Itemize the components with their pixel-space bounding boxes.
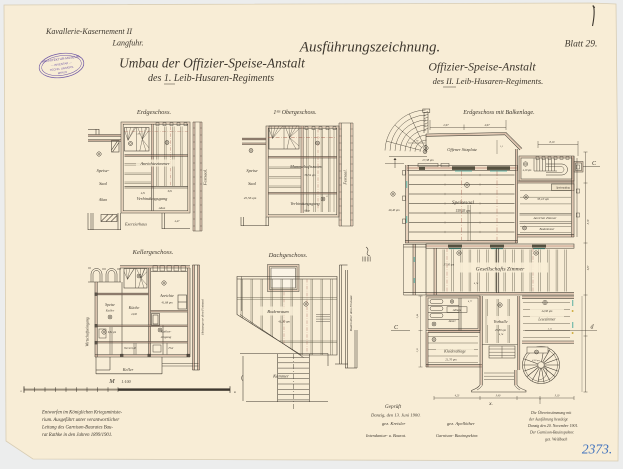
svg-text:Blatt 29.: Blatt 29. [565,40,598,50]
svg-text:Bodenraum: Bodenraum [267,309,289,314]
svg-text:4,19 qm: 4,19 qm [523,169,532,172]
svg-text:Speiseaufzug: Speiseaufzug [556,187,570,190]
svg-text:Altan: Altan [303,210,311,213]
svg-text:des II. Leib-Husaren-Regiment: des II. Leib-Husaren-Regiments. [433,76,544,86]
svg-text:des 1. Leib-Husaren-Regiments: des 1. Leib-Husaren-Regiments [148,73,274,84]
svg-text:Badezimmer: Badezimmer [540,227,556,231]
svg-text:Intendantur- u. Baurat.: Intendantur- u. Baurat. [365,433,406,438]
svg-text:Festsaal.: Festsaal. [343,169,348,185]
svg-text:8,10: 8,10 [587,219,590,224]
svg-text:Küche: Küche [128,305,140,310]
svg-text:rat Rathke in den Jahren 189: rat Rathke in den Jahren 1899/1901. [42,433,112,438]
svg-text:4,74: 4,74 [474,282,479,285]
svg-text:Speise-: Speise- [97,168,110,173]
svg-text:3,10: 3,10 [555,395,560,398]
svg-text:Der Garnison-Bauinspektor.: Der Garnison-Bauinspektor. [529,431,574,435]
svg-text:Leitung des Garnison-Baurates: Leitung des Garnison-Baurates Bau- [41,426,113,431]
svg-text:Verbindungsgang: Verbindungsgang [137,196,169,201]
svg-text:Kellergeschoss.: Kellergeschoss. [132,249,174,256]
svg-text:4,31: 4,31 [141,192,146,195]
svg-text:Boden über dem Festsaal.: Boden über dem Festsaal. [349,295,353,332]
svg-text:Altan: Altan [98,198,107,202]
svg-text:8,10: 8,10 [550,141,555,144]
svg-text:Flur: Flur [168,347,175,350]
svg-text:gez. Kreisler: gez. Kreisler [382,421,406,426]
svg-text:Festsaal.: Festsaal. [203,169,208,186]
svg-text:24,90 qm: 24,90 qm [542,309,553,313]
svg-text:24,06: 24,06 [131,313,138,316]
svg-text:Keller: Keller [105,309,115,313]
svg-text:4,47: 4,47 [175,220,180,223]
svg-text:Wirtschaftseingang: Wirtschaftseingang [86,317,90,346]
svg-text:1ᵗᵉˢ Obergeschoss.: 1ᵗᵉˢ Obergeschoss. [273,110,316,116]
svg-text:5,87: 5,87 [587,265,590,270]
svg-text:Umbau der Offizier-Speise-Anst: Umbau der Offizier-Speise-Anstalt [119,56,305,71]
svg-text:Entworfen im Königlichen Krieg: Entworfen im Königlichen Kriegsministe- [41,411,122,416]
svg-text:Heizung vor dem Festsaal: Heizung vor dem Festsaal [201,299,205,336]
svg-text:6,01: 6,01 [168,190,173,193]
svg-text:Speise: Speise [105,303,115,307]
svg-text:Exerzierhaus: Exerzierhaus [124,222,147,227]
svg-text:Anrichte: Anrichte [159,293,174,298]
svg-text:Kavallerie-Kasernement II: Kavallerie-Kasernement II [45,27,132,36]
svg-text:Dachgeschoss.: Dachgeschoss. [268,252,308,259]
svg-text:Die Übereinstimmung mit: Die Übereinstimmung mit [530,410,572,415]
svg-text:Kleiderablage: Kleiderablage [443,350,466,354]
svg-text:Erdgeschoss.: Erdgeschoss. [136,109,172,116]
svg-text:rium. Ausgeführt unter verant: rium. Ausgeführt unter verantwortlicher [42,418,119,423]
svg-text:Anrichtezimmer: Anrichtezimmer [139,161,170,166]
svg-text:Kammer: Kammer [272,374,289,379]
svg-text:gez. Apellöther: gez. Apellöther [447,421,475,426]
svg-text:Offizier-Speise-Anstalt: Offizier-Speise-Anstalt [428,60,536,74]
svg-text:Mannschaftsraum: Mannschaftsraum [289,164,322,169]
svg-text:Danzig den 20. November 1901.: Danzig den 20. November 1901. [527,424,578,428]
svg-text:4,50 qm: 4,50 qm [532,359,540,362]
svg-text:Gesellschafts Zimmer: Gesellschafts Zimmer [476,266,525,273]
svg-text:Abort: Abort [448,319,456,323]
svg-text:x.: x. [488,401,493,407]
svg-text:Vorhalle: Vorhalle [493,319,507,324]
svg-text:Offener Sitzplatz: Offener Sitzplatz [447,147,477,152]
svg-text:gez. Weißbach: gez. Weißbach [545,438,567,442]
svg-text:Altan: Altan [158,206,166,210]
svg-text:37,50 qm: 37,50 qm [444,264,454,267]
svg-text:Speisesaal: Speisesaal [452,200,474,206]
svg-text:M: M [108,378,115,385]
svg-text:5,11: 5,11 [548,328,552,331]
svg-text:eingang: eingang [161,335,172,339]
svg-text:Ausführungszeichnung.: Ausführungszeichnung. [299,40,440,56]
svg-text:Ablage: Ablage [452,308,462,312]
svg-text:Keller: Keller [122,367,134,372]
svg-text:Verbindungsgang: Verbindungsgang [290,201,319,206]
svg-text:Anrichte Zimmer: Anrichte Zimmer [532,216,557,220]
svg-text:1,70: 1,70 [414,140,419,143]
svg-text:4,74: 4,74 [499,333,504,336]
svg-text:Vorrat 9,46: Vorrat 9,46 [124,347,137,350]
svg-text:Langfuhr.: Langfuhr. [112,39,144,48]
svg-text:Lesezimmer: Lesezimmer [537,318,556,322]
svg-text:Erdgeschoss mit Balkenlage.: Erdgeschoss mit Balkenlage. [462,109,534,116]
svg-text:4,23: 4,23 [455,395,460,398]
svg-text:Speise: Speise [246,168,257,173]
svg-text:1:100: 1:100 [121,379,130,384]
svg-text:Garnison- Bauinspektor.: Garnison- Bauinspektor. [436,433,478,438]
svg-text:Saal: Saal [99,181,108,186]
svg-text:der Ausführung bestätigt: der Ausführung bestätigt [529,418,569,422]
svg-text:3,40: 3,40 [496,395,501,398]
svg-text:2373.: 2373. [582,442,612,457]
svg-text:Geprüft: Geprüft [385,403,402,410]
svg-text:Saal: Saal [248,181,257,186]
svg-text:6,04 qm: 6,04 qm [108,331,116,334]
